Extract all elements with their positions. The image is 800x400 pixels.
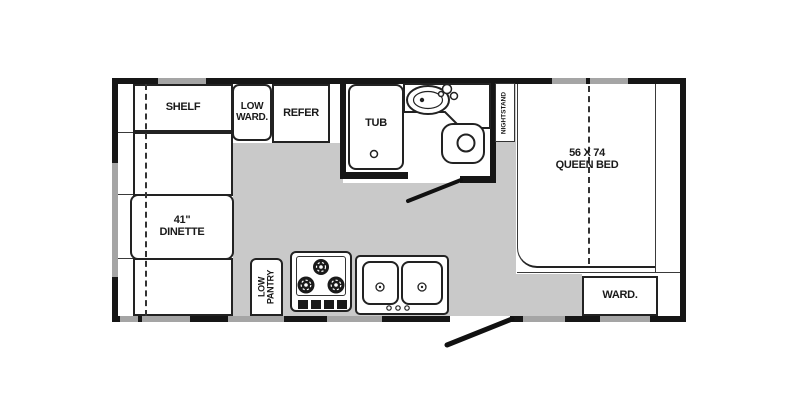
stove-burner-icon	[328, 277, 345, 294]
kitchen-sink-icon	[356, 256, 448, 314]
stove-knob-icon	[298, 300, 347, 309]
toilet-icon	[442, 124, 484, 163]
entry-door-swing-icon	[447, 319, 512, 345]
tub-drain-icon	[371, 151, 378, 158]
stove-burner-icon	[313, 259, 329, 275]
fixtures-layer	[0, 0, 800, 400]
stove-burner-icon	[298, 277, 315, 294]
door-swing-icon	[408, 180, 461, 201]
floorplan: SHELF 41" DINETTE LOW WARD. REFER TUB NI…	[0, 0, 800, 400]
